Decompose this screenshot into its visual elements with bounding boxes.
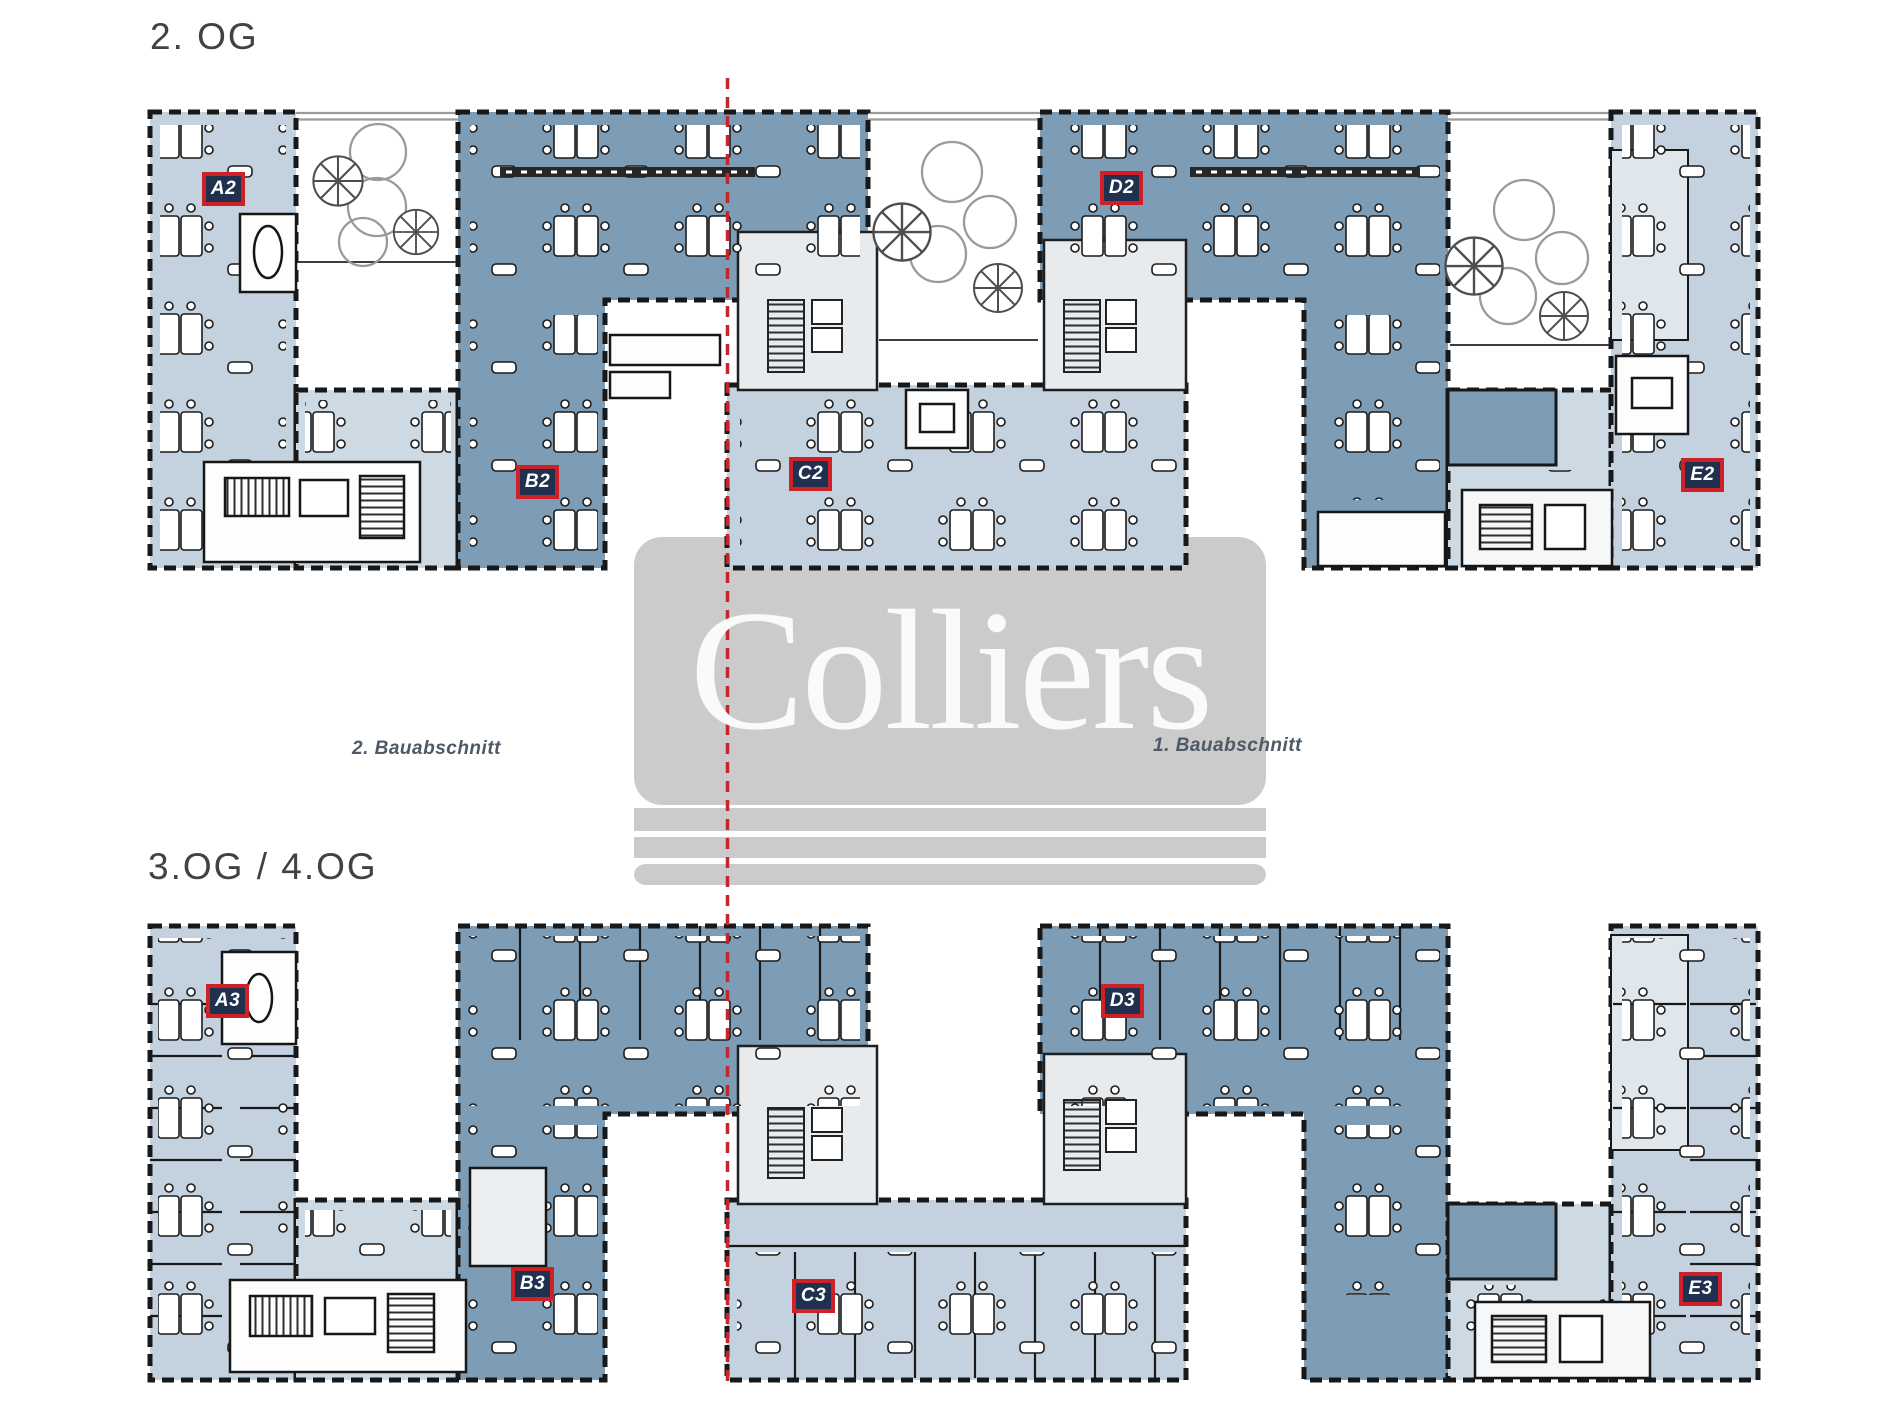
label-bauabschnitt-1: 1. Bauabschnitt [1153,735,1302,757]
unit-label-d3: D3 [1101,984,1144,1018]
floorplan-graphic [0,0,1900,1425]
unit-label-e2: E2 [1681,458,1724,492]
label-bauabschnitt-2: 2. Bauabschnitt [352,738,501,760]
unit-label-a3: A3 [206,984,249,1018]
unit-label-a2: A2 [202,172,245,206]
unit-label-d2: D2 [1100,171,1143,205]
title-floor-2-og: 2. OG [150,16,259,58]
plan-2-og [150,112,1758,568]
stub-e2 [1448,390,1556,465]
floorplan-sheet: 2. OG 3.OG / 4.OG 2. Bauabschnitt 1. Bau… [0,0,1900,1425]
tree-icons-courtyard-2 [910,142,1016,282]
title-floor-3-4-og: 3.OG / 4.OG [148,846,378,888]
unit-label-b2: B2 [516,465,559,499]
unit-label-b3: B3 [511,1267,554,1301]
unit-label-c3: C3 [792,1279,835,1313]
unit-label-c2: C2 [789,457,832,491]
unit-label-e3: E3 [1679,1272,1722,1306]
stub-e3 [1448,1204,1556,1279]
plan-3-4-og [150,926,1758,1380]
